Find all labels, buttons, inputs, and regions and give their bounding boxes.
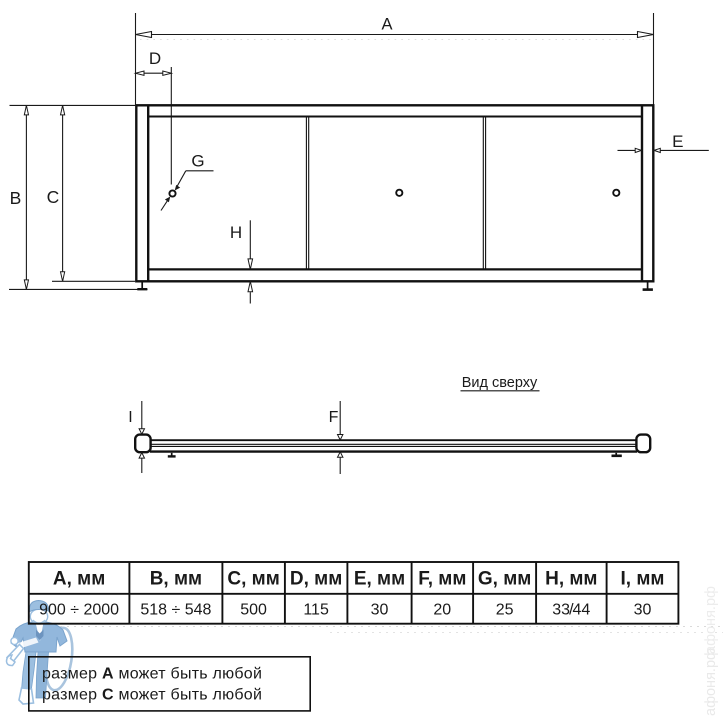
svg-text:G: G [191,151,204,170]
svg-text:Вид сверху: Вид сверху [462,375,538,391]
svg-text:500: 500 [240,602,267,619]
svg-text:G, мм: G, мм [478,568,531,589]
svg-text:30: 30 [371,602,389,619]
svg-text:D: D [149,49,161,68]
svg-text:20: 20 [433,602,451,619]
svg-text:A, мм: A, мм [53,568,105,589]
svg-text:размер С может быть любой: размер С может быть любой [42,687,262,704]
svg-text:25: 25 [496,602,514,619]
svg-text:A: A [381,15,392,33]
svg-text:H, мм: H, мм [545,568,597,589]
svg-text:афоня.рф: афоня.рф [703,648,719,716]
svg-text:B, мм: B, мм [150,568,202,589]
svg-text:E, мм: E, мм [354,568,405,589]
svg-text:E: E [672,132,683,151]
svg-text:C, мм: C, мм [227,568,279,589]
svg-text:H: H [230,223,242,242]
svg-text:F, мм: F, мм [418,568,466,589]
svg-text:D, мм: D, мм [290,568,342,589]
svg-text:900 ÷ 2000: 900 ÷ 2000 [39,602,119,619]
svg-text:C: C [47,187,60,207]
svg-text:518 ÷ 548: 518 ÷ 548 [140,602,211,619]
svg-text:I: I [128,409,132,426]
svg-text:33/44: 33/44 [552,602,590,619]
svg-text:I, мм: I, мм [621,568,665,589]
svg-text:афоня.рф: афоня.рф [703,586,719,654]
svg-text:115: 115 [303,602,329,619]
svg-text:B: B [10,188,22,208]
svg-text:размер А может быть любой: размер А может быть любой [42,666,262,683]
svg-text:30: 30 [634,602,652,619]
svg-text:F: F [329,409,339,426]
